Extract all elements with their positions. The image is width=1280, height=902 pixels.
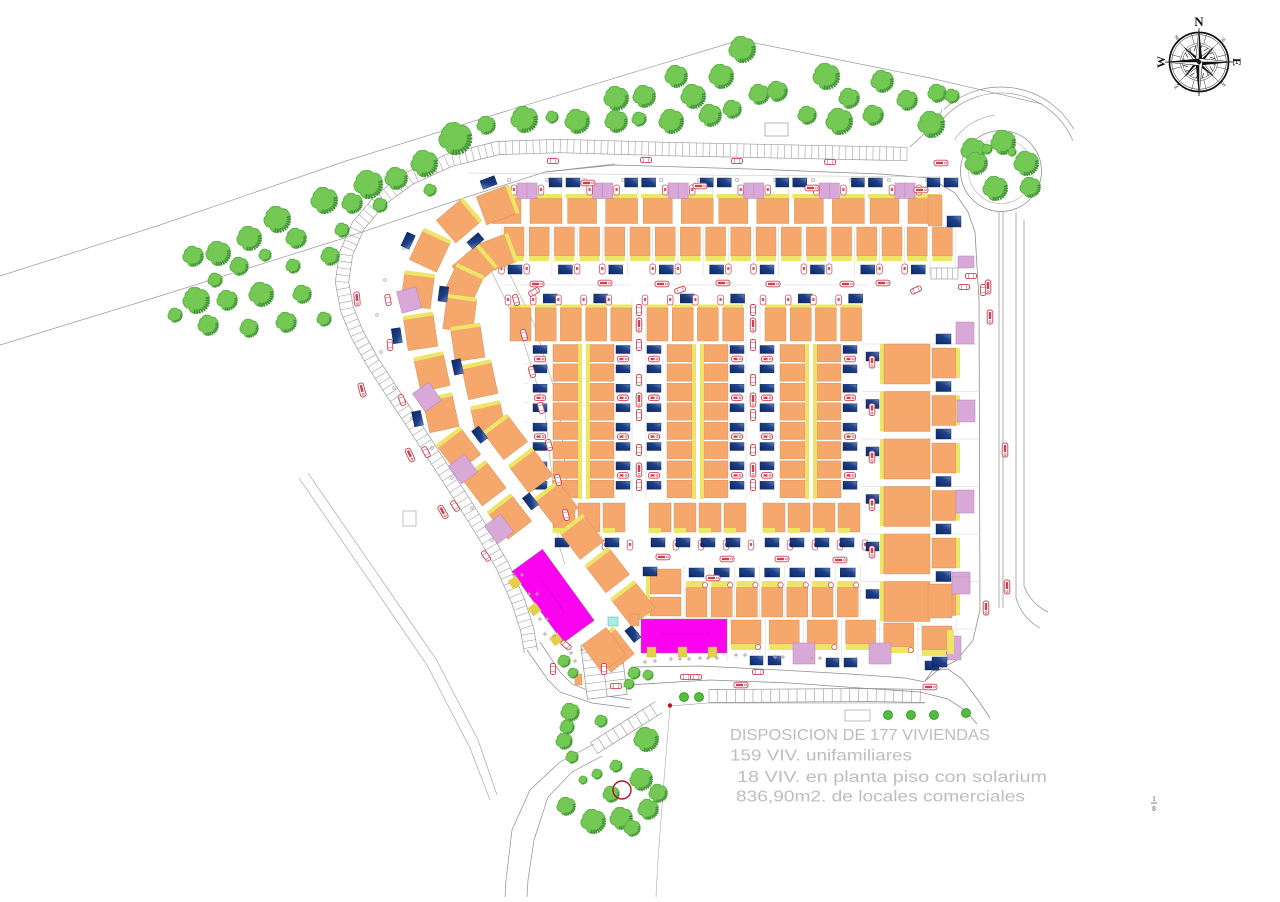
svg-text:8: 8 <box>1152 805 1156 813</box>
svg-text:18 VIV. en planta piso con sol: 18 VIV. en planta piso con solarium <box>737 769 1047 786</box>
svg-text:N: N <box>1194 14 1204 29</box>
svg-text:159 VIV. unifamiliares: 159 VIV. unifamiliares <box>730 748 912 765</box>
svg-text:836,90m2. de locales comercial: 836,90m2. de locales comerciales <box>736 789 1025 806</box>
svg-text:1: 1 <box>1152 795 1156 803</box>
svg-text:W: W <box>1154 56 1168 68</box>
svg-text:DISPOSICION DE 177 VIVIENDAS: DISPOSICION DE 177 VIVIENDAS <box>730 727 990 744</box>
svg-text:E: E <box>1230 58 1244 66</box>
